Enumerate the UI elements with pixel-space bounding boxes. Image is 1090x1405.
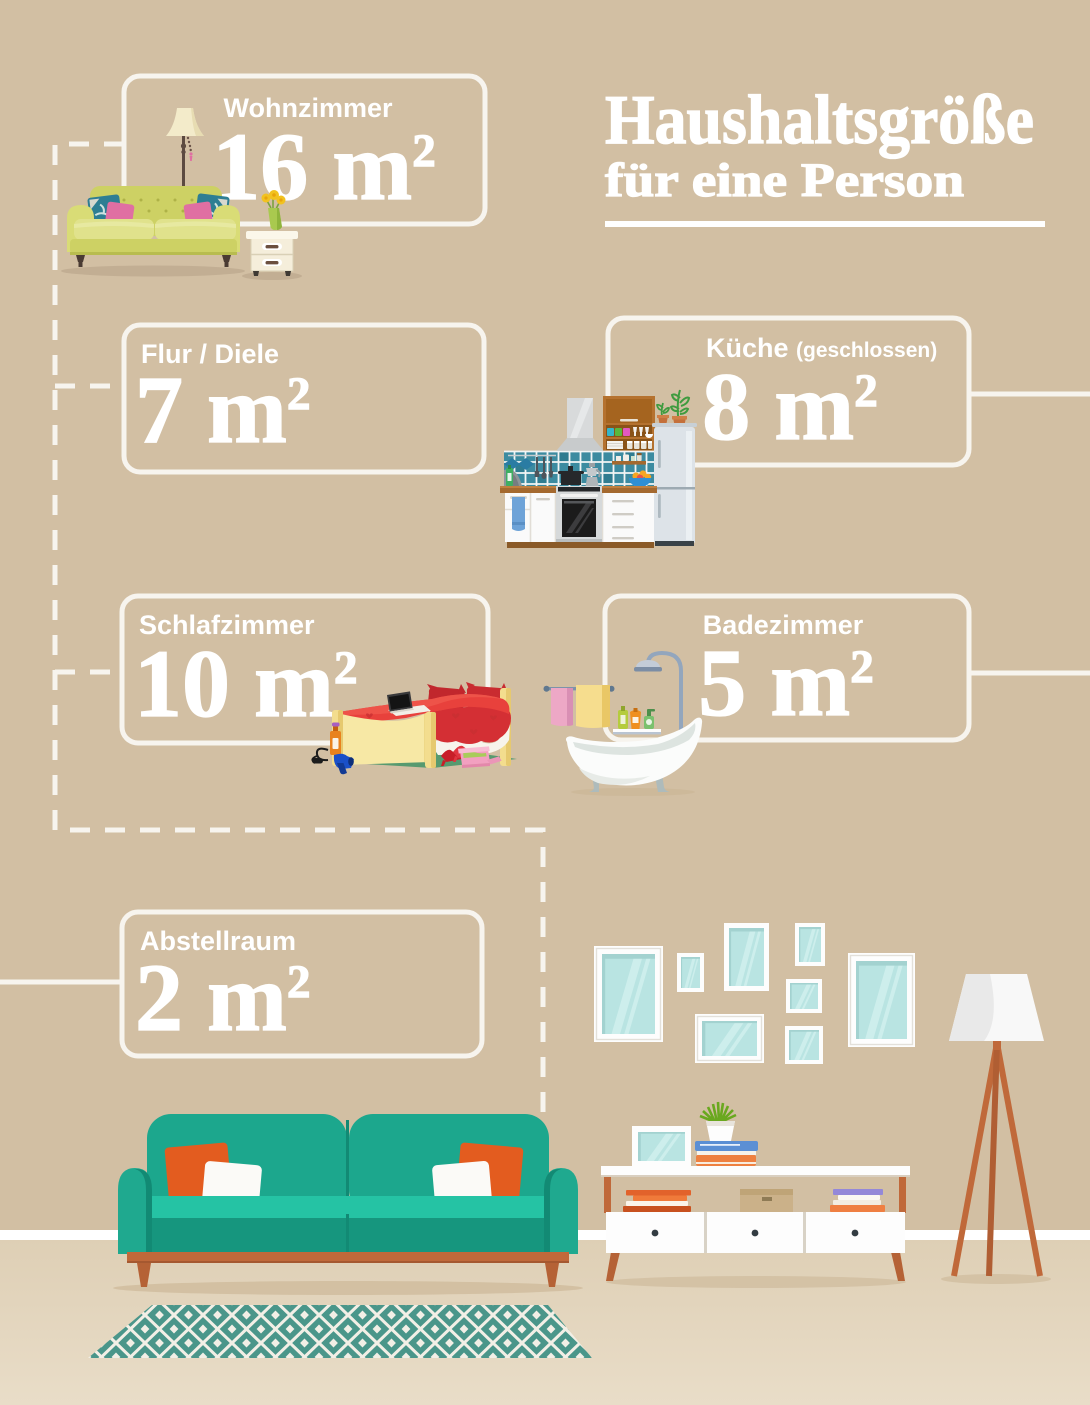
svg-text:Haushaltsgröße: Haushaltsgröße <box>605 82 1034 159</box>
svg-text:für eine Person: für eine Person <box>605 154 964 207</box>
svg-text:10 m2: 10 m2 <box>134 630 357 737</box>
svg-text:5 m2: 5 m2 <box>698 629 873 736</box>
svg-text:8 m2: 8 m2 <box>702 353 877 460</box>
svg-text:16 m2: 16 m2 <box>212 113 435 220</box>
svg-text:7 m2: 7 m2 <box>135 356 310 463</box>
svg-text:2 m2: 2 m2 <box>135 944 310 1051</box>
